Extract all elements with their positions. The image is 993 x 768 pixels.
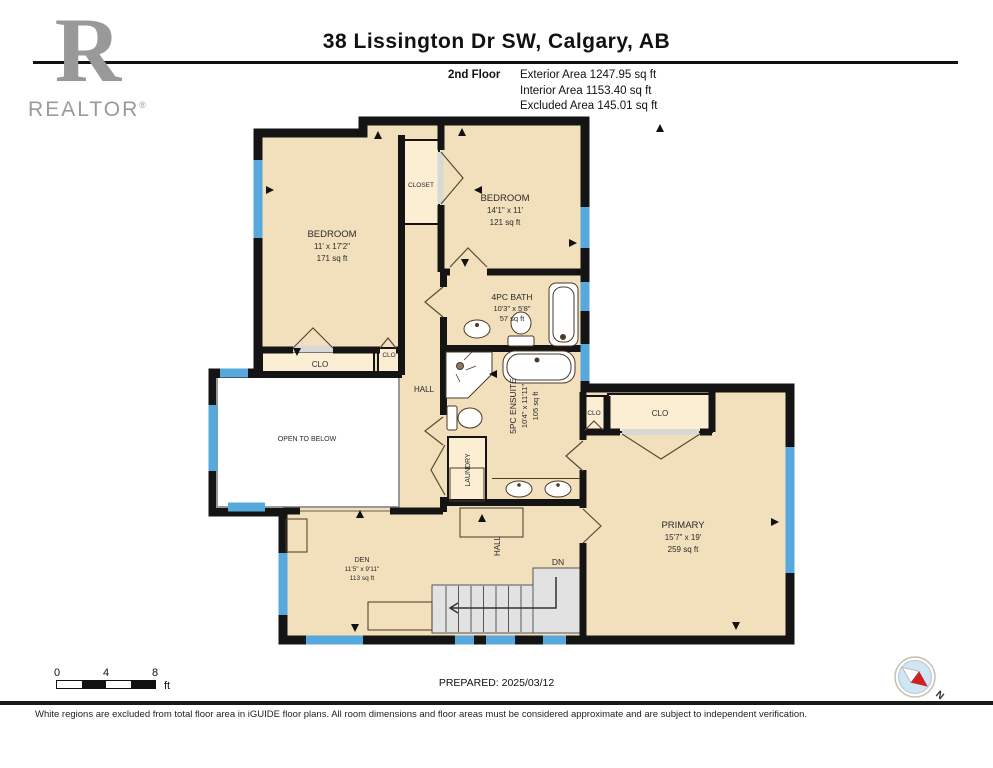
bath-name: 4PC BATH	[492, 292, 533, 302]
bedroom-left-dims: 11' x 17'2"	[314, 242, 350, 251]
den-area: 113 sq ft	[350, 575, 375, 582]
den-name: DEN	[355, 557, 370, 564]
hall-label: HALL	[414, 385, 435, 394]
prepared-date: PREPARED: 2025/03/12	[0, 677, 993, 689]
den-dims: 11'5" x 9'11"	[345, 566, 380, 573]
disclaimer-text: White regions are excluded from total fl…	[35, 709, 807, 720]
hall-lower-label: HALL	[493, 535, 502, 556]
ensuite-toilet-icon	[447, 406, 457, 430]
dn-label: DN	[552, 557, 564, 567]
clo-small-label: CLO	[587, 410, 600, 417]
clo-2-label: CLO	[382, 352, 395, 359]
bedroom-top-name: BEDROOM	[480, 193, 529, 204]
bedroom-top-area: 121 sq ft	[490, 218, 521, 227]
footer-divider	[0, 701, 993, 705]
open-to-below-label: OPEN TO BELOW	[278, 436, 337, 443]
bath-toilet-icon	[508, 336, 534, 346]
ensuite-dims: 10'4" x 11'11"	[520, 384, 529, 429]
primary-name: PRIMARY	[661, 520, 705, 531]
clo-large-label: CLO	[652, 409, 668, 418]
floor-plan: BEDROOM 11' x 17'2" 171 sq ft BEDROOM 14…	[0, 0, 993, 768]
ensuite-name: 5PC ENSUITE	[508, 378, 518, 434]
bedroom-left-area: 171 sq ft	[317, 254, 348, 263]
clo-band-label: CLO	[312, 360, 328, 369]
primary-area: 259 sq ft	[668, 545, 699, 554]
bedroom-top-dims: 14'1" x 11'	[487, 206, 523, 215]
laundry-label: LAUNDRY	[465, 453, 472, 487]
bath-dims: 10'3" x 5'8"	[494, 304, 531, 313]
ensuite-area: 105 sq ft	[531, 391, 540, 421]
bath-sink-icon	[464, 320, 490, 338]
bath-area: 57 sq ft	[500, 314, 526, 323]
closet-top-label: CLOSET	[408, 182, 434, 189]
primary-dims: 15'7" x 19'	[665, 533, 702, 542]
bedroom-left-name: BEDROOM	[307, 229, 356, 240]
